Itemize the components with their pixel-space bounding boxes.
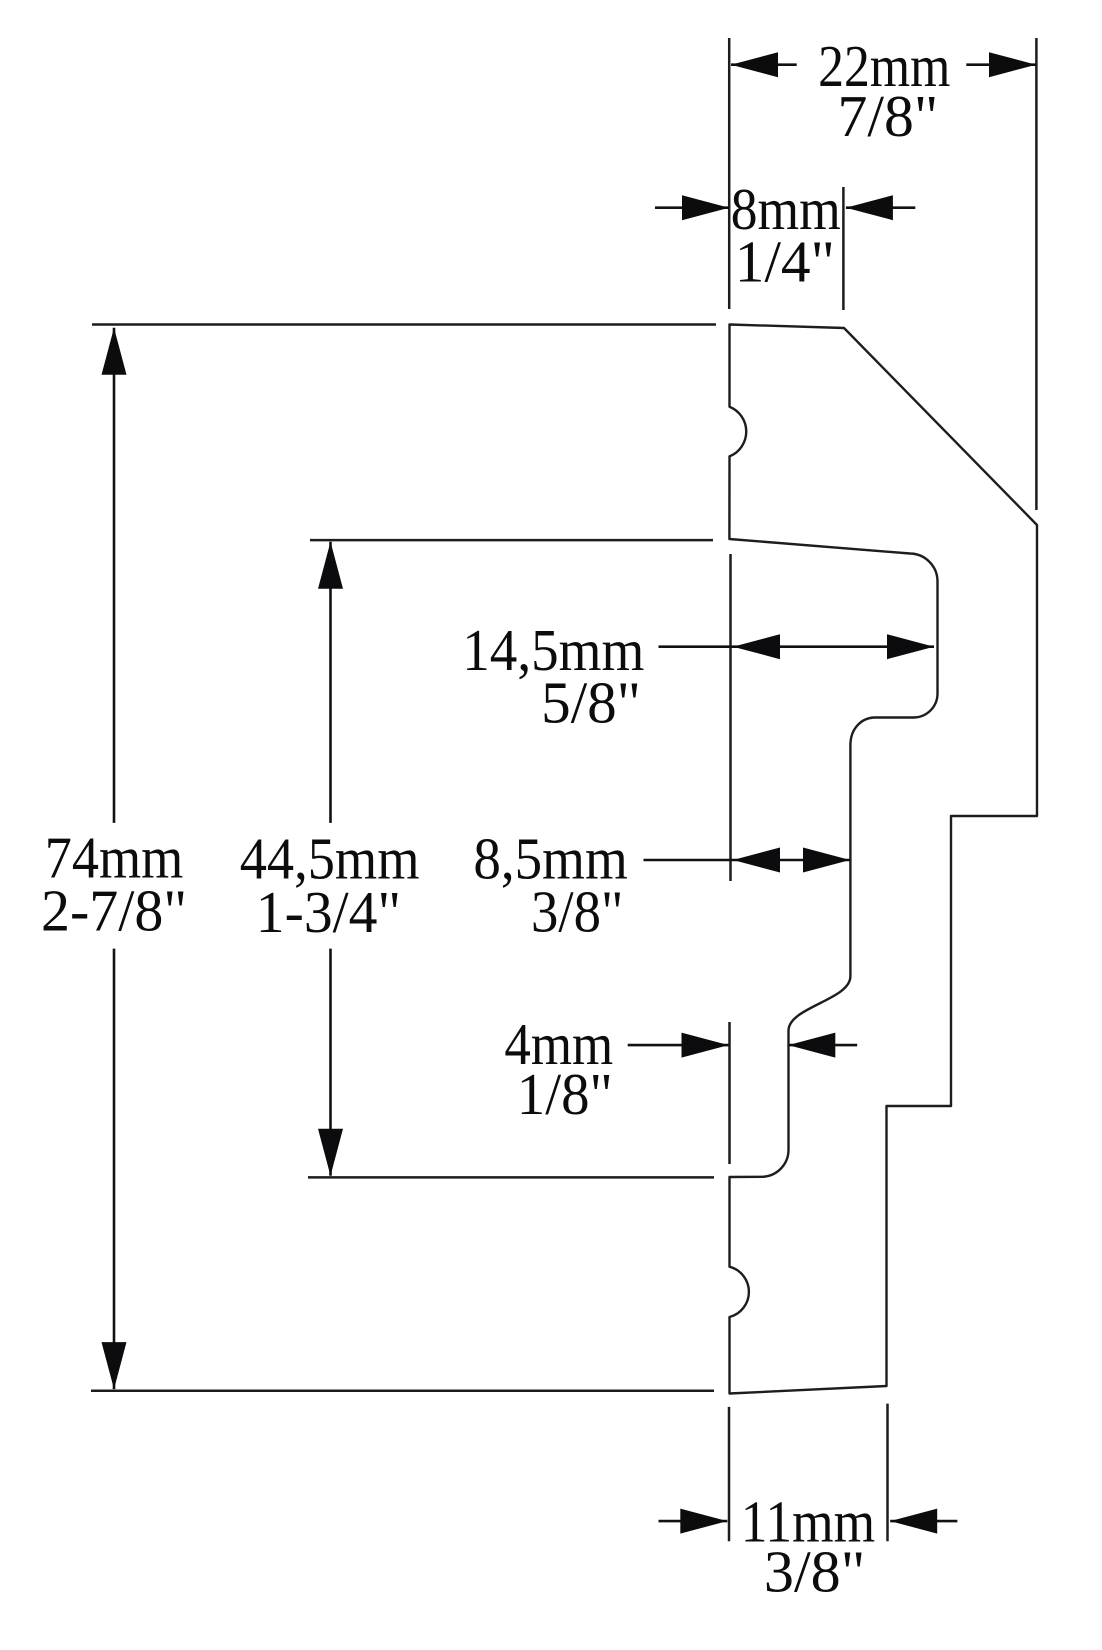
- svg-text:2-7/8": 2-7/8": [41, 878, 187, 944]
- svg-text:3/8": 3/8": [531, 880, 623, 945]
- svg-text:5/8": 5/8": [541, 670, 641, 736]
- svg-text:7/8": 7/8": [838, 83, 939, 149]
- svg-text:1/4": 1/4": [735, 229, 835, 295]
- svg-text:1/8": 1/8": [517, 1061, 613, 1127]
- svg-text:1-3/4": 1-3/4": [256, 879, 401, 945]
- svg-text:3/8": 3/8": [764, 1539, 865, 1604]
